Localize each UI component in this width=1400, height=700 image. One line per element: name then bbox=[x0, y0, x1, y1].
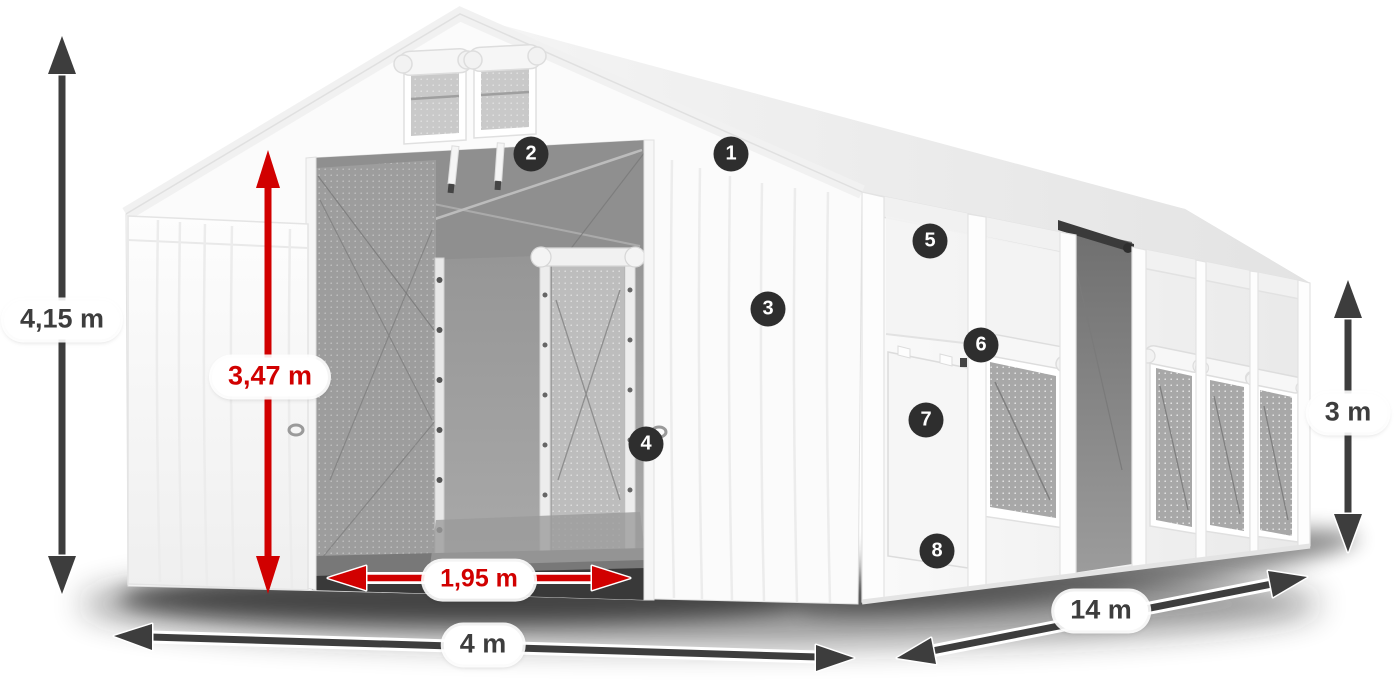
hotspot-1[interactable]: 1 bbox=[714, 137, 749, 172]
gable-vent-window-right bbox=[464, 44, 546, 138]
hotspot-6[interactable]: 6 bbox=[964, 328, 999, 363]
side-window-1 bbox=[976, 332, 1072, 528]
tent-illustration bbox=[0, 0, 1400, 700]
dimension-label-total-height: 4,15 m bbox=[4, 300, 120, 339]
hotspot-8[interactable]: 8 bbox=[920, 534, 955, 569]
tent-dimension-diagram: 4,15 m 3,47 m 1,95 m 4 m 14 m 3 m 1 2 3 … bbox=[0, 0, 1400, 700]
dimension-label-entrance-height: 3,47 m bbox=[212, 357, 328, 396]
dimension-label-side-height: 3 m bbox=[1309, 393, 1388, 432]
hotspot-5[interactable]: 5 bbox=[913, 224, 948, 259]
dimension-label-entrance-width: 1,95 m bbox=[424, 562, 534, 599]
inner-pole bbox=[435, 258, 444, 560]
dimension-label-length: 14 m bbox=[1054, 591, 1148, 630]
hotspot-2[interactable]: 2 bbox=[514, 137, 549, 172]
hotspot-3[interactable]: 3 bbox=[751, 292, 786, 327]
hotspot-7[interactable]: 7 bbox=[909, 403, 944, 438]
front-door-left bbox=[128, 216, 308, 590]
hotspot-4[interactable]: 4 bbox=[629, 427, 664, 462]
door-flap-clip bbox=[960, 358, 967, 367]
dimension-label-front-width: 4 m bbox=[444, 625, 523, 664]
entrance-opening bbox=[312, 140, 648, 600]
